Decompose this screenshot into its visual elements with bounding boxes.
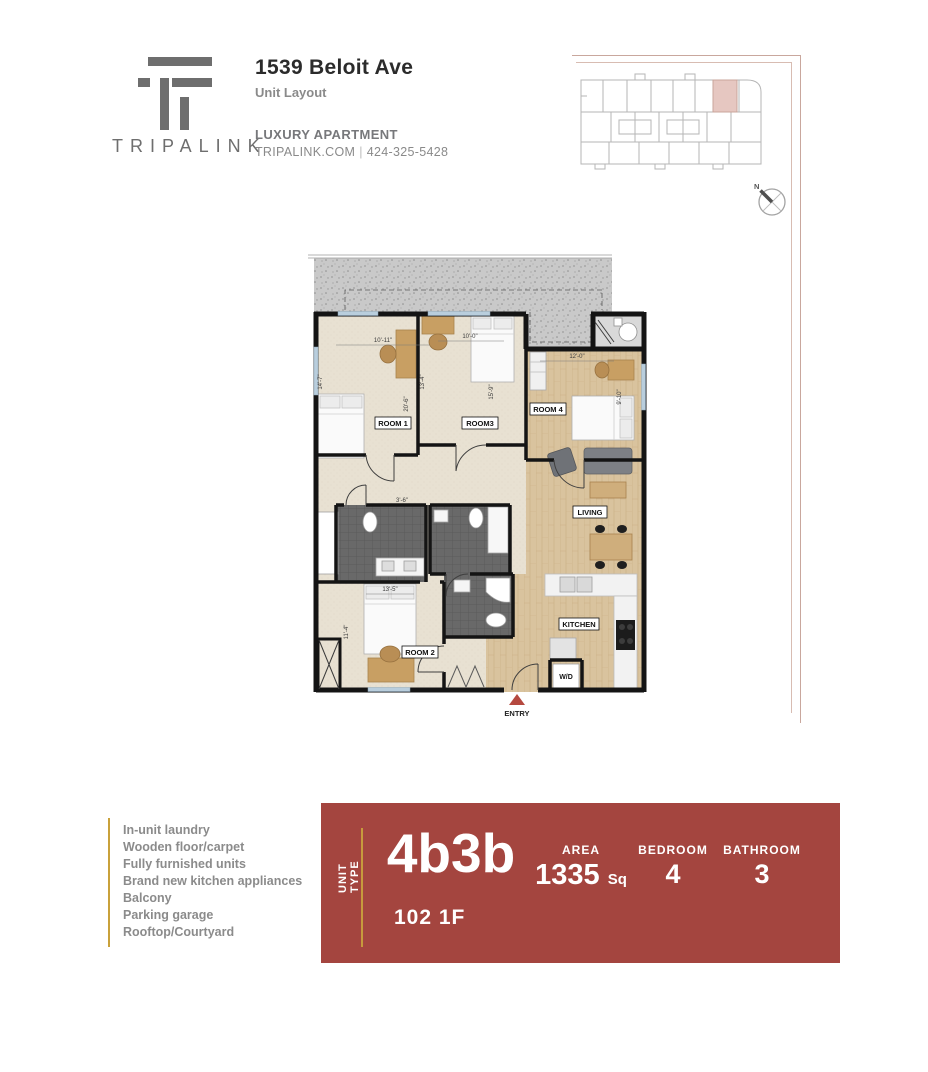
website-text: TRIPALINK.COM	[255, 145, 355, 159]
header: 1539 Beloit Ave Unit Layout LUXURY APART…	[255, 56, 448, 159]
unit-info-banner: UNIT TYPE 4b3b AREA 1335 Sq BEDROOM 4 BA…	[321, 803, 840, 963]
room1-label: ROOM 1	[378, 419, 408, 428]
wd-label: W/D	[559, 674, 573, 681]
dim-room4-w: 12'-0"	[569, 354, 584, 360]
area-label: AREA	[534, 843, 628, 857]
phone-text: 424-325-5428	[367, 145, 448, 159]
tripalink-logo-icon	[138, 57, 216, 131]
bedroom-stat: BEDROOM 4	[634, 843, 712, 890]
tagline: LUXURY APARTMENT	[255, 127, 448, 142]
dim-room3-w: 10'-0"	[462, 334, 477, 340]
dim-room1-h: 14'-7"	[318, 374, 324, 389]
kitchen-label: KITCHEN	[562, 620, 595, 629]
entry-marker: ENTRY	[504, 694, 529, 718]
bathroom-label: BATHROOM	[719, 843, 805, 857]
bathroom-stat: BATHROOM 3	[719, 843, 805, 890]
feature-item: Parking garage	[123, 907, 302, 924]
flyer-page: TRIPALINK 1539 Beloit Ave Unit Layout LU…	[0, 0, 928, 1072]
brand-wordmark: TRIPALINK	[112, 136, 250, 157]
bedroom-label: BEDROOM	[634, 843, 712, 857]
room3-label: ROOM3	[466, 419, 494, 428]
page-subtitle: Unit Layout	[255, 85, 448, 100]
feature-item: Wooden floor/carpet	[123, 839, 302, 856]
contact-line: TRIPALINK.COM|424-325-5428	[255, 145, 448, 159]
feature-item: Rooftop/Courtyard	[123, 924, 302, 941]
area-unit: Sq	[608, 871, 627, 888]
floorplan: ROOM 1 ROOM3 ROOM 4 LIVING KITCHEN ROOM …	[308, 252, 648, 722]
features-list: In-unit laundry Wooden floor/carpet Full…	[108, 818, 302, 947]
dim-room4-h: 9'-10"	[617, 389, 623, 404]
unit-type-label: UNIT TYPE	[337, 831, 361, 893]
dim-hall: 3'-6"	[396, 498, 408, 504]
area-value: 1335	[535, 859, 600, 891]
feature-item: Fully furnished units	[123, 856, 302, 873]
living-label: LIVING	[577, 508, 602, 517]
feature-item: In-unit laundry	[123, 822, 302, 839]
feature-item: Brand new kitchen appliances	[123, 873, 302, 890]
entry-label: ENTRY	[504, 709, 529, 718]
unit-type-value: 4b3b	[381, 821, 521, 885]
highlighted-unit	[713, 80, 737, 112]
area-stat: AREA 1335 Sq	[534, 843, 628, 892]
room2-label: ROOM 2	[405, 648, 435, 657]
page-title: 1539 Beloit Ave	[255, 56, 448, 80]
feature-item: Balcony	[123, 890, 302, 907]
bathroom-value: 3	[719, 859, 805, 890]
dim-room1-d: 20'-6"	[404, 396, 410, 411]
dim-room3-l: 13'-4"	[420, 374, 426, 389]
room4-label: ROOM 4	[533, 405, 563, 414]
dim-room2-h: 11'-4"	[344, 625, 350, 640]
building-keyplan	[575, 66, 771, 178]
contact-separator: |	[355, 145, 367, 159]
unit-number: 102 1F	[394, 906, 465, 930]
dim-room3-h: 15'-9"	[489, 384, 495, 399]
dim-room2-w: 13'-5"	[382, 587, 397, 593]
compass-icon: N	[746, 176, 794, 224]
north-label: N	[754, 182, 759, 191]
dim-room1-w: 10'-11"	[374, 338, 392, 344]
gold-divider	[361, 828, 363, 947]
bedroom-value: 4	[634, 859, 712, 890]
